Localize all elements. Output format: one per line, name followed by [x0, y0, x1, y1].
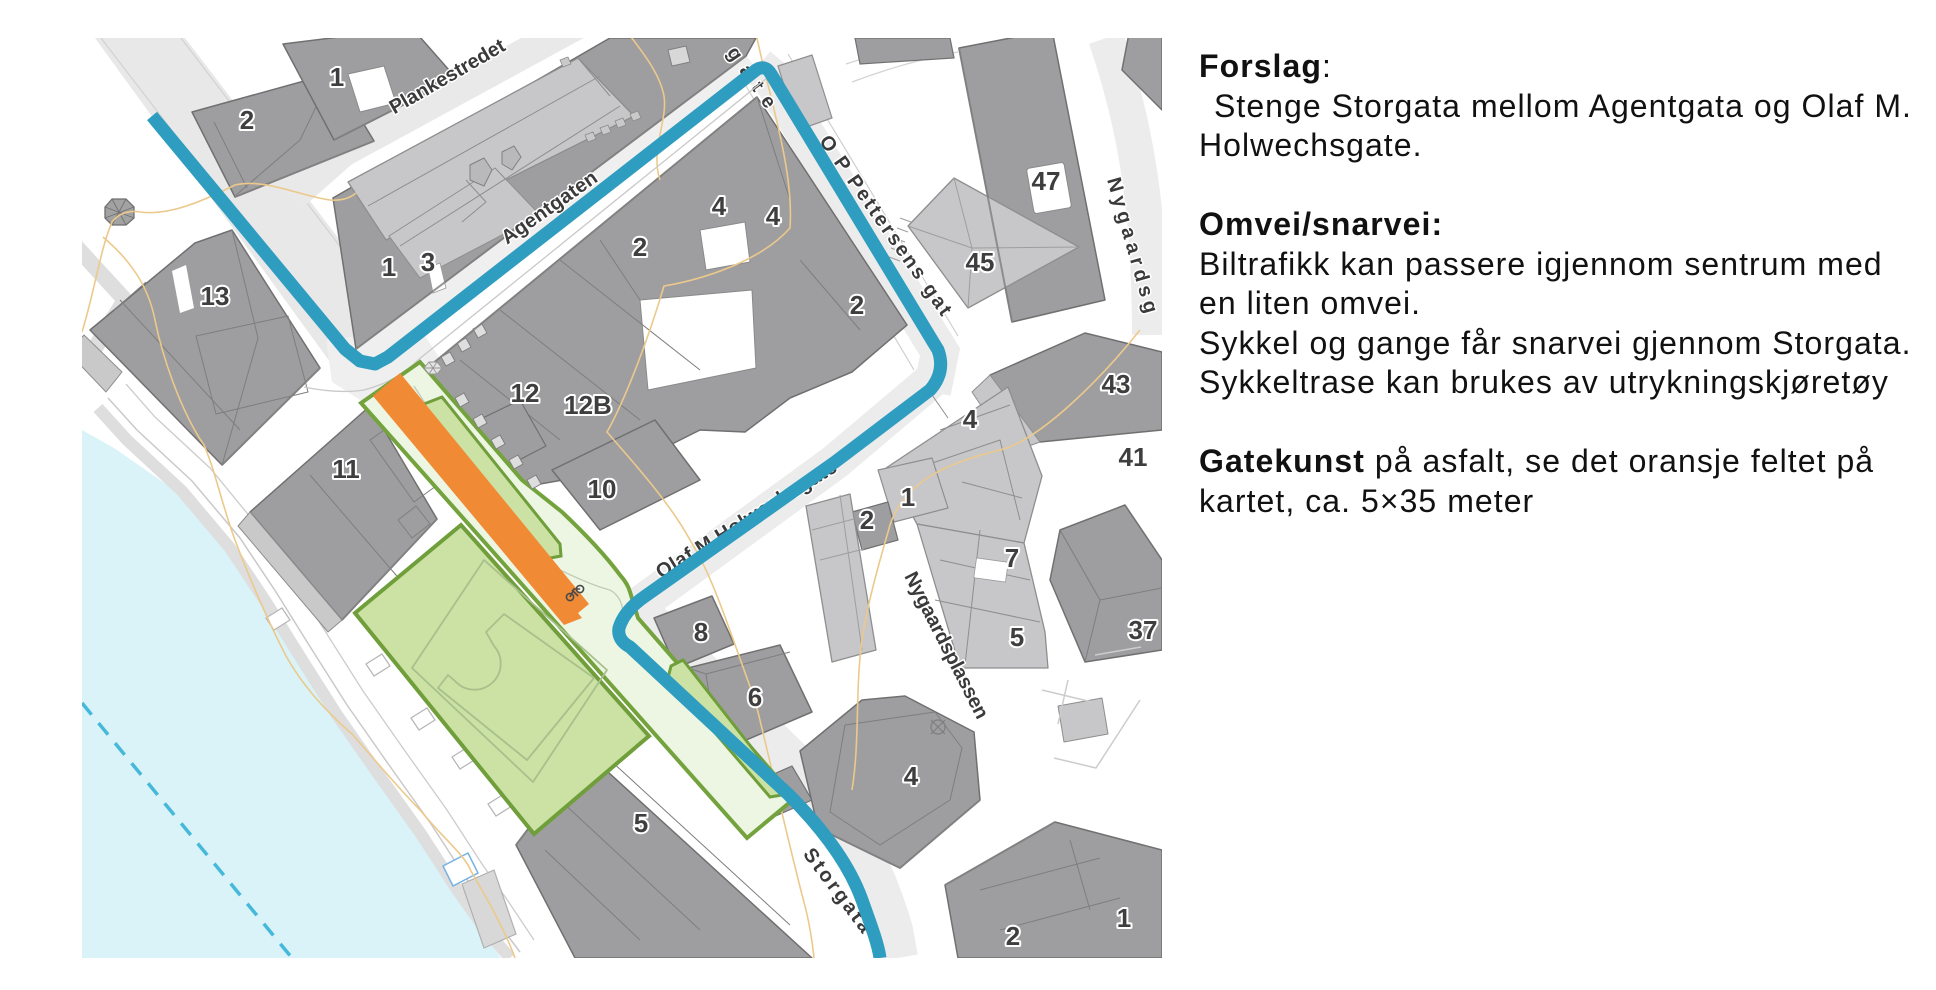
svg-text:45: 45 — [966, 247, 995, 277]
svg-text:4: 4 — [904, 761, 919, 791]
svg-text:2: 2 — [1006, 921, 1020, 951]
svg-text:2: 2 — [240, 105, 254, 135]
svg-text:12B: 12B — [564, 390, 612, 420]
svg-text:3: 3 — [421, 247, 435, 277]
svg-text:1: 1 — [330, 62, 344, 92]
svg-text:43: 43 — [1102, 369, 1131, 399]
svg-text:4: 4 — [712, 191, 727, 221]
svg-text:5: 5 — [634, 808, 648, 838]
svg-text:11: 11 — [332, 454, 360, 484]
svg-text:4: 4 — [963, 404, 978, 434]
svg-text:47: 47 — [1032, 166, 1061, 196]
svg-text:7: 7 — [1005, 543, 1019, 573]
svg-text:1: 1 — [382, 252, 396, 282]
svg-text:1: 1 — [901, 482, 915, 512]
svg-text:12: 12 — [511, 378, 540, 408]
svg-text:37: 37 — [1129, 615, 1158, 645]
svg-text:2: 2 — [633, 232, 647, 262]
svg-text:13: 13 — [201, 281, 230, 311]
svg-text:2: 2 — [860, 505, 874, 535]
svg-text:41: 41 — [1119, 442, 1148, 472]
svg-text:6: 6 — [748, 682, 762, 712]
svg-text:1: 1 — [1117, 903, 1131, 933]
svg-text:5: 5 — [1010, 622, 1024, 652]
svg-text:8: 8 — [694, 617, 708, 647]
svg-text:4: 4 — [766, 201, 781, 231]
svg-text:2: 2 — [850, 290, 864, 320]
svg-text:10: 10 — [588, 474, 617, 504]
